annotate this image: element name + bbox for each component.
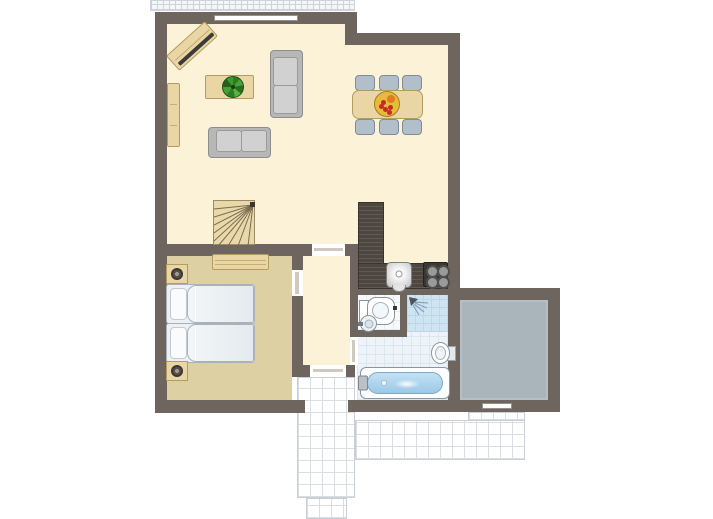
bathroom-sink [431, 342, 456, 363]
terrace-vertical-tiles [297, 377, 355, 498]
wardrobe [212, 254, 269, 270]
sink-drain [396, 270, 403, 277]
fruit-red [381, 100, 386, 105]
sideboard-line [170, 104, 177, 105]
dining-chair [402, 75, 422, 91]
double-bed [166, 284, 253, 361]
sideboard-line [170, 125, 177, 126]
threshold-bedroom [295, 272, 299, 294]
wall-wc-divider [400, 295, 407, 330]
nightstand [166, 361, 188, 381]
wall-storage-right [548, 288, 560, 412]
plant-icon [222, 76, 244, 98]
bed-duvet [187, 324, 254, 362]
bathtub [360, 367, 450, 399]
storage-room-window [482, 403, 512, 409]
dining-chair [355, 75, 375, 91]
dining-chair [379, 119, 399, 135]
wc-hand-basin [360, 315, 377, 332]
sofa-cushion [273, 85, 298, 114]
dining-chair [402, 119, 422, 135]
wall-hall-right [350, 256, 358, 337]
threshold-living-hall [314, 248, 343, 251]
shower-head-icon [408, 296, 430, 318]
sofa-front [208, 127, 271, 158]
sink-basin [431, 342, 450, 364]
sofa-cushion [241, 130, 267, 152]
wall-bathroom-bottom [348, 400, 460, 412]
stove [423, 262, 448, 287]
sofa-side [270, 50, 303, 118]
storage-room-floor [460, 300, 548, 400]
terrace-stub-tiles [306, 498, 347, 519]
sofa-cushion [216, 130, 242, 152]
threshold-bathroom [352, 340, 355, 362]
wall-bedroom-bottom [155, 400, 305, 413]
burner-icon [437, 276, 450, 289]
fruit-bowl-icon [374, 91, 400, 117]
nightstand [166, 264, 188, 284]
bathtub-faucet [358, 376, 368, 391]
wall-outer-top-b [345, 33, 460, 45]
staircase [213, 200, 255, 245]
sideboard [167, 83, 180, 147]
lamp-icon [171, 365, 183, 377]
kitchen-sink [386, 262, 412, 288]
bed-pillow [170, 288, 187, 320]
bed-mattress [166, 323, 255, 363]
wardrobe-line [215, 264, 266, 265]
living-room-window [214, 15, 298, 21]
bed-pillow [170, 327, 187, 359]
dining-chair [355, 119, 375, 135]
staircase-steps [214, 201, 256, 246]
door-stop-dot [393, 306, 397, 310]
dining-chair [379, 75, 399, 91]
hallway-floor [303, 256, 350, 365]
bathtub-highlight [390, 378, 424, 390]
threshold-hall-terrace [313, 369, 343, 372]
floor-plan [0, 0, 713, 519]
terrace-band-tiles [355, 420, 525, 460]
bed-duvet [187, 285, 254, 323]
wall-storage-top [448, 288, 560, 300]
sink-basin-inner [435, 346, 446, 360]
wardrobe-line [215, 260, 266, 261]
balcony-top-tiles [150, 0, 355, 11]
toilet-seat [372, 302, 389, 319]
bed-mattress [166, 284, 255, 324]
fruit-red [387, 110, 392, 115]
wall-hall-left-a [292, 256, 303, 270]
basin-tap [358, 322, 363, 326]
wall-hall-bottom-b [346, 365, 355, 377]
wall-divider-b [345, 244, 358, 256]
bathtub-inner [367, 372, 443, 394]
sofa-cushion [273, 57, 298, 86]
basin-drain [364, 319, 373, 328]
wall-wc-bottom [350, 330, 407, 337]
bathtub-drain [381, 380, 387, 386]
wall-hall-bottom-a [292, 365, 310, 377]
kitchen-tall-cabinet [358, 202, 384, 264]
lamp-icon [171, 268, 183, 280]
